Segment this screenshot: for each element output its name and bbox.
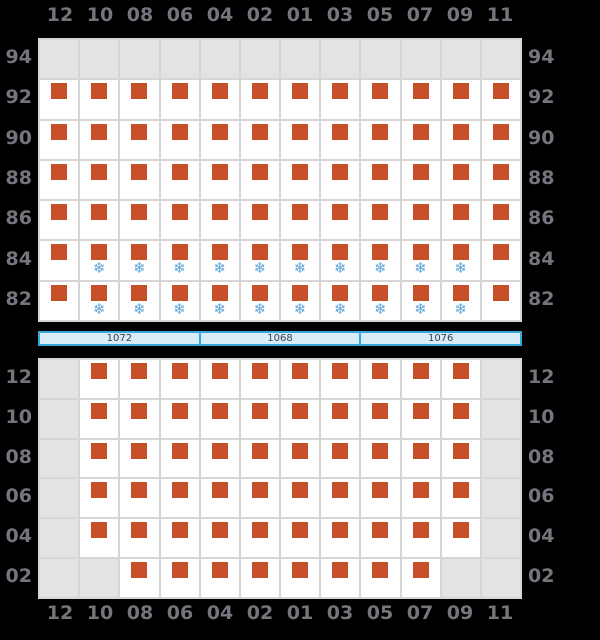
grid-cell[interactable] [361,121,399,159]
marker-square [372,83,388,99]
marker-square [252,363,268,379]
row-label: 04 [0,519,32,557]
marker-square [51,164,67,180]
grid-cell[interactable] [40,440,78,478]
grid-cell[interactable] [80,201,118,239]
grid-cell[interactable] [120,440,158,478]
grid-cell[interactable]: ❄ [80,241,118,279]
grid-cell[interactable] [361,479,399,517]
grid-cell[interactable] [482,559,520,597]
grid-cell[interactable] [241,161,279,199]
row-label: 06 [528,479,588,517]
marker-square [51,83,67,99]
grid-cell[interactable] [482,201,520,239]
grid-cell[interactable] [40,479,78,517]
marker-square [332,562,348,578]
grid-cell[interactable] [482,121,520,159]
marker-square [131,403,147,419]
grid-cell[interactable] [361,440,399,478]
column-label: 10 [80,602,120,624]
marker-square [372,285,388,301]
grid-cell[interactable] [482,80,520,118]
marker-square [172,164,188,180]
marker-square [292,164,308,180]
marker-square [453,522,469,538]
snowflake-icon: ❄ [213,261,226,276]
row-label: 84 [528,242,588,280]
marker-square [172,285,188,301]
marker-square [332,83,348,99]
marker-square [51,285,67,301]
marker-square [332,244,348,260]
grid-cell[interactable] [442,201,480,239]
grid-cell[interactable] [281,201,319,239]
grid-cell[interactable]: ❄ [201,282,239,320]
grid-cell[interactable] [482,519,520,557]
marker-square [172,124,188,140]
row-label: 04 [528,519,588,557]
grid-cell[interactable] [241,519,279,557]
grid-cell[interactable] [402,440,440,478]
snowflake-icon: ❄ [133,261,146,276]
snowflake-icon: ❄ [454,261,467,276]
marker-square [292,285,308,301]
marker-square [131,164,147,180]
marker-square [91,244,107,260]
marker-square [292,244,308,260]
grid-cell[interactable] [281,440,319,478]
grid-cell[interactable] [402,519,440,557]
grid-cell[interactable] [402,400,440,438]
grid-cell[interactable] [482,161,520,199]
grid-cell[interactable] [241,400,279,438]
marker-square [453,204,469,220]
marker-square [131,443,147,459]
grid-cell[interactable] [40,400,78,438]
column-label: 06 [160,602,200,624]
snowflake-icon: ❄ [93,302,106,317]
grid-cell[interactable]: ❄ [161,241,199,279]
grid-cell[interactable] [361,519,399,557]
marker-square [131,204,147,220]
grid-cell[interactable] [281,40,319,78]
grid-cell[interactable]: ❄ [361,282,399,320]
grid-cell[interactable] [281,80,319,118]
grid-cell[interactable] [361,161,399,199]
grid-cell[interactable] [161,400,199,438]
grid-cell[interactable]: ❄ [241,241,279,279]
marker-square [91,403,107,419]
bottom-axis: 121008060402010305070911 [40,602,520,624]
grid-cell[interactable] [40,360,78,398]
grid-cell[interactable]: ❄ [281,282,319,320]
grid-cell[interactable] [201,201,239,239]
marker-square [292,482,308,498]
grid-cell[interactable] [321,559,359,597]
marker-square [413,204,429,220]
grid-cell[interactable] [281,360,319,398]
grid-cell[interactable] [361,40,399,78]
marker-square [252,522,268,538]
marker-square [51,244,67,260]
marker-square [172,83,188,99]
grid-cell[interactable] [161,559,199,597]
grid-cell[interactable] [201,40,239,78]
marker-square [172,204,188,220]
marker-square [453,124,469,140]
marker-square [413,482,429,498]
grid-cell[interactable] [361,80,399,118]
marker-square [453,363,469,379]
grid-cell[interactable] [40,80,78,118]
grid-cell[interactable]: ❄ [120,282,158,320]
row-label: 88 [528,161,588,199]
marker-square [91,204,107,220]
marker-square [252,443,268,459]
grid-cell[interactable]: ❄ [161,282,199,320]
marker-square [292,363,308,379]
marker-square [131,83,147,99]
marker-square [292,443,308,459]
column-label: 11 [480,602,520,624]
grid-cell[interactable] [201,479,239,517]
grid-cell[interactable] [161,80,199,118]
grid-cell[interactable] [161,440,199,478]
row-label: 08 [528,440,588,478]
grid-cell[interactable] [120,360,158,398]
grid-cell[interactable] [40,121,78,159]
grid-cell[interactable] [321,519,359,557]
grid-cell[interactable] [402,201,440,239]
marker-square [51,124,67,140]
marker-square [51,204,67,220]
snowflake-icon: ❄ [374,261,387,276]
grid-cell[interactable] [361,400,399,438]
marker-square [413,164,429,180]
row-label: 94 [528,40,588,78]
grid-cell[interactable] [402,40,440,78]
marker-square [91,164,107,180]
grid-cell[interactable] [402,479,440,517]
grid-cell[interactable] [482,400,520,438]
grid-cell[interactable] [161,201,199,239]
grid-cell[interactable] [161,360,199,398]
grid-cell[interactable] [161,519,199,557]
marker-square [131,482,147,498]
marker-square [91,285,107,301]
marker-square [212,244,228,260]
grid-cell[interactable] [40,201,78,239]
marker-square [91,83,107,99]
grid-cell[interactable] [442,519,480,557]
grid-cell[interactable] [402,161,440,199]
snowflake-icon: ❄ [213,302,226,317]
grid-cell[interactable] [80,121,118,159]
grid-cell[interactable]: ❄ [442,282,480,320]
grid-cell[interactable] [402,80,440,118]
grid-cell[interactable] [120,40,158,78]
top-axis: 121008060402010305070911 [40,4,520,26]
grid-cell[interactable] [281,479,319,517]
grid-cell[interactable] [120,400,158,438]
marker-square [131,363,147,379]
row-label: 82 [0,282,32,320]
grid-cell[interactable] [201,519,239,557]
grid-cell[interactable] [201,161,239,199]
column-label: 05 [360,602,400,624]
marker-square [372,562,388,578]
marker-square [172,482,188,498]
grid-cell[interactable] [442,479,480,517]
grid-cell[interactable] [402,559,440,597]
grid-cell[interactable] [442,40,480,78]
column-label: 09 [440,602,480,624]
grid-cell[interactable] [321,40,359,78]
marker-square [493,204,509,220]
grid-cell[interactable] [80,360,118,398]
column-label: 11 [480,4,520,26]
marker-square [413,83,429,99]
grid-cell[interactable] [201,121,239,159]
grid-cell[interactable] [281,559,319,597]
grid-cell[interactable] [201,400,239,438]
grid-cell[interactable] [40,519,78,557]
bar-segment-label: 1072 [107,333,132,344]
row-label: 82 [528,282,588,320]
marker-square [453,83,469,99]
marker-square [91,124,107,140]
grid-cell[interactable]: ❄ [80,282,118,320]
grid-cell[interactable] [482,40,520,78]
grid-cell[interactable] [442,360,480,398]
grid-cell[interactable]: ❄ [402,241,440,279]
grid-cell[interactable] [241,201,279,239]
snowflake-icon: ❄ [334,302,347,317]
marker-square [172,522,188,538]
column-label: 04 [200,602,240,624]
marker-square [252,83,268,99]
board: 121008060402010305070911 ❄❄❄❄❄❄❄❄❄❄❄❄❄❄❄… [0,0,600,640]
row-label: 90 [0,121,32,159]
grid-cell[interactable] [321,201,359,239]
marker-square [372,403,388,419]
grid-cell[interactable] [80,161,118,199]
snowflake-icon: ❄ [414,302,427,317]
grid-cell[interactable] [281,519,319,557]
summary-bar: 107210681076 [38,331,522,346]
marker-square [493,164,509,180]
marker-square [453,244,469,260]
grid-cell[interactable] [321,121,359,159]
marker-square [212,124,228,140]
snowflake-icon: ❄ [133,302,146,317]
grid-cell[interactable] [281,400,319,438]
grid-cell[interactable] [120,519,158,557]
grid-cell[interactable] [442,559,480,597]
bar-segment: 1072 [40,333,199,344]
marker-square [252,482,268,498]
row-label: 86 [528,201,588,239]
grid-cell[interactable] [80,40,118,78]
grid-cell[interactable] [321,440,359,478]
snowflake-icon: ❄ [254,261,267,276]
grid-cell[interactable] [120,121,158,159]
grid-cell[interactable] [442,161,480,199]
marker-square [252,204,268,220]
grid-cell[interactable] [442,121,480,159]
marker-square [292,522,308,538]
grid-cell[interactable] [402,360,440,398]
marker-square [493,285,509,301]
grid-cell[interactable] [442,80,480,118]
grid-cell[interactable] [241,559,279,597]
grid-cell[interactable] [120,479,158,517]
column-label: 07 [400,4,440,26]
grid-cell[interactable] [40,241,78,279]
grid-cell[interactable]: ❄ [281,241,319,279]
bar-segment: 1076 [359,333,520,344]
snowflake-icon: ❄ [294,261,307,276]
grid-cell[interactable]: ❄ [241,282,279,320]
marker-square [212,403,228,419]
marker-square [413,522,429,538]
grid-cell[interactable] [120,559,158,597]
row-label: 86 [0,201,32,239]
grid-cell[interactable] [80,519,118,557]
grid-cell[interactable] [361,559,399,597]
grid-cell[interactable] [80,400,118,438]
marker-square [212,562,228,578]
grid-cell[interactable] [281,161,319,199]
grid-cell[interactable] [241,40,279,78]
marker-square [453,482,469,498]
marker-square [252,164,268,180]
grid-cell[interactable]: ❄ [321,282,359,320]
grid-cell[interactable] [40,282,78,320]
grid-cell[interactable] [321,479,359,517]
grid-cell[interactable] [201,440,239,478]
marker-square [332,482,348,498]
grid-cell[interactable] [80,479,118,517]
column-label: 01 [280,602,320,624]
marker-square [372,443,388,459]
grid-cell[interactable] [40,40,78,78]
grid-cell[interactable] [40,161,78,199]
marker-square [372,482,388,498]
column-label: 02 [240,602,280,624]
grid-cell[interactable] [241,360,279,398]
grid-cell[interactable] [281,121,319,159]
grid-cell[interactable] [321,400,359,438]
grid-cell[interactable] [241,121,279,159]
marker-square [332,403,348,419]
marker-square [292,403,308,419]
row-label: 12 [528,360,588,398]
marker-square [131,244,147,260]
grid-cell[interactable]: ❄ [201,241,239,279]
row-label: 88 [0,161,32,199]
grid-cell[interactable] [482,479,520,517]
upper-grid: ❄❄❄❄❄❄❄❄❄❄❄❄❄❄❄❄❄❄❄❄ [38,38,522,322]
grid-cell[interactable] [161,161,199,199]
grid-cell[interactable]: ❄ [361,241,399,279]
grid-cell[interactable]: ❄ [321,241,359,279]
grid-cell[interactable] [442,400,480,438]
grid-cell[interactable] [442,440,480,478]
marker-square [413,403,429,419]
row-label: 06 [0,479,32,517]
grid-cell[interactable] [161,121,199,159]
grid-cell[interactable] [201,360,239,398]
marker-square [332,522,348,538]
snowflake-icon: ❄ [254,302,267,317]
grid-cell[interactable] [482,282,520,320]
marker-square [252,403,268,419]
bar-segment-label: 1068 [267,333,292,344]
grid-cell[interactable] [80,559,118,597]
column-label: 02 [240,4,280,26]
row-label: 08 [0,440,32,478]
marker-square [372,164,388,180]
marker-square [372,522,388,538]
marker-square [372,204,388,220]
grid-cell[interactable] [361,201,399,239]
grid-cell[interactable] [120,201,158,239]
grid-cell[interactable] [482,360,520,398]
grid-cell[interactable]: ❄ [120,241,158,279]
marker-square [212,443,228,459]
grid-cell[interactable] [482,440,520,478]
grid-cell[interactable] [120,161,158,199]
marker-square [493,124,509,140]
marker-square [252,285,268,301]
grid-cell[interactable]: ❄ [402,282,440,320]
marker-square [292,562,308,578]
marker-square [172,403,188,419]
grid-cell[interactable] [201,80,239,118]
grid-cell[interactable] [321,80,359,118]
grid-cell[interactable] [321,161,359,199]
marker-square [131,522,147,538]
grid-cell[interactable]: ❄ [442,241,480,279]
grid-cell[interactable] [120,80,158,118]
grid-cell[interactable] [482,241,520,279]
marker-square [212,363,228,379]
marker-square [91,443,107,459]
grid-cell[interactable] [241,80,279,118]
grid-cell[interactable] [40,559,78,597]
grid-cell[interactable] [201,559,239,597]
grid-cell[interactable] [241,479,279,517]
grid-cell[interactable] [161,40,199,78]
grid-cell[interactable] [80,440,118,478]
row-label: 12 [0,360,32,398]
grid-cell[interactable] [402,121,440,159]
marker-square [453,403,469,419]
grid-cell[interactable] [80,80,118,118]
snowflake-icon: ❄ [374,302,387,317]
marker-square [292,124,308,140]
marker-square [372,244,388,260]
grid-cell[interactable] [161,479,199,517]
column-label: 01 [280,4,320,26]
grid-cell[interactable] [321,360,359,398]
marker-square [413,363,429,379]
grid-cell[interactable] [361,360,399,398]
marker-square [212,204,228,220]
marker-square [413,124,429,140]
grid-cell[interactable] [241,440,279,478]
